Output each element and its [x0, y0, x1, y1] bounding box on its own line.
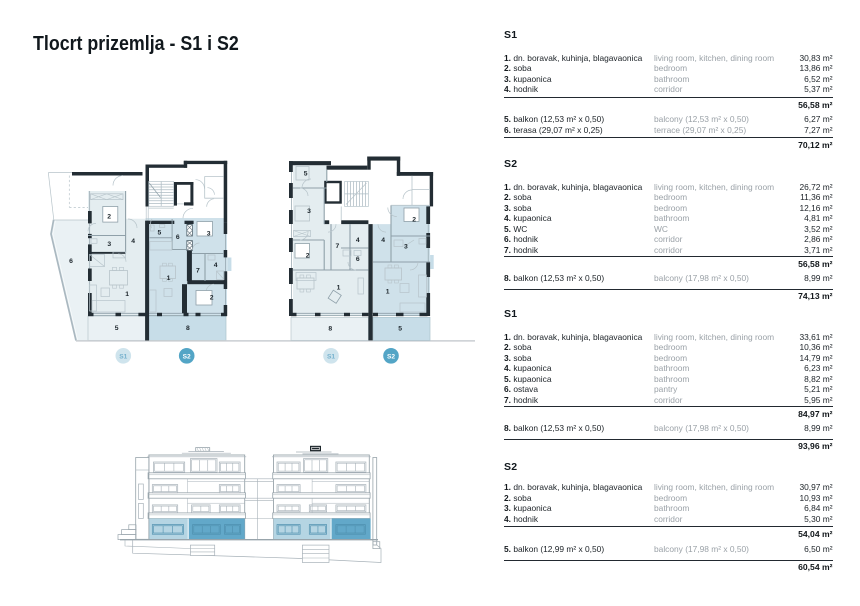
svg-text:S1: S1 — [119, 353, 127, 360]
svg-text:7: 7 — [196, 267, 200, 274]
svg-text:4: 4 — [131, 238, 135, 245]
svg-text:S2: S2 — [387, 353, 395, 360]
svg-text:2: 2 — [210, 294, 214, 301]
svg-text:4: 4 — [214, 262, 218, 269]
svg-text:4: 4 — [356, 237, 360, 244]
svg-text:3: 3 — [307, 208, 311, 215]
svg-text:2: 2 — [107, 214, 111, 221]
svg-text:5: 5 — [115, 325, 119, 332]
svg-text:5: 5 — [304, 171, 308, 178]
svg-text:1: 1 — [125, 291, 129, 298]
svg-text:2: 2 — [306, 252, 310, 259]
svg-text:8: 8 — [186, 325, 190, 332]
svg-text:1: 1 — [337, 285, 341, 292]
svg-text:1: 1 — [386, 289, 390, 296]
svg-text:3: 3 — [207, 231, 211, 238]
svg-text:S2: S2 — [183, 353, 191, 360]
svg-text:6: 6 — [69, 258, 73, 265]
svg-text:3: 3 — [107, 241, 111, 248]
svg-text:5: 5 — [398, 325, 402, 332]
svg-text:3: 3 — [404, 244, 408, 251]
svg-text:5: 5 — [158, 229, 162, 236]
svg-text:6: 6 — [356, 256, 360, 263]
svg-text:1: 1 — [167, 275, 171, 282]
svg-text:8: 8 — [328, 325, 332, 332]
svg-text:4: 4 — [381, 237, 385, 244]
svg-text:2: 2 — [412, 216, 416, 223]
svg-text:6: 6 — [176, 234, 180, 241]
svg-text:S1: S1 — [327, 353, 335, 360]
svg-text:7: 7 — [336, 243, 340, 250]
